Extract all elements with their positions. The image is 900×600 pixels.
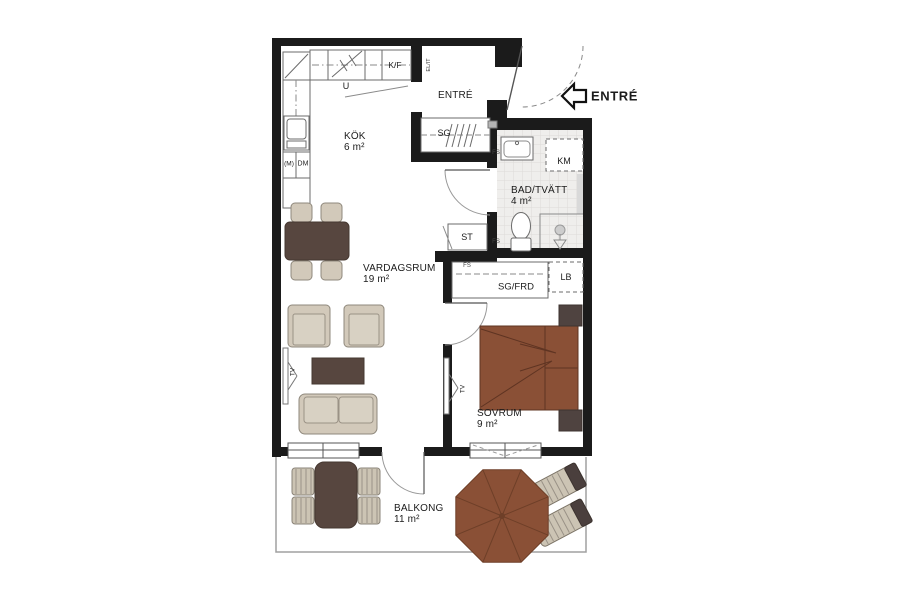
- fixture-label-dishwasher: DM: [298, 161, 309, 168]
- fixture-label-pipe-cabinet-3: FS: [463, 263, 471, 269]
- room-name: BAD/TVÄTT: [511, 185, 567, 196]
- room-label-balkong: BALKONG 11 m²: [394, 503, 443, 525]
- room-name: KÖK: [344, 131, 366, 142]
- room-area: 4 m²: [511, 196, 567, 207]
- fixture-label-linen-cabinet: LB: [560, 272, 571, 282]
- parasol-icon: [456, 470, 548, 562]
- fixture-label-wardrobe-sg: SG: [437, 128, 450, 138]
- entrance-arrow-icon: [562, 84, 586, 108]
- room-label-kok: KÖK 6 m²: [344, 131, 366, 153]
- fixture-label-tv-bedroom: TV: [460, 385, 467, 393]
- room-label-sovrum: SOVRUM 9 m²: [477, 408, 522, 430]
- room-label-bad-tvatt: BAD/TVÄTT 4 m²: [511, 185, 567, 207]
- room-area: 19 m²: [363, 274, 435, 285]
- room-label-entre-hall: ENTRÉ: [438, 90, 473, 101]
- room-area: 11 m²: [394, 514, 443, 525]
- room-area: 6 m²: [344, 142, 366, 153]
- floorplan-page: KÖK 6 m² VARDAGSRUM 19 m² BAD/TVÄTT 4 m²…: [0, 0, 900, 600]
- room-name: VARDAGSRUM: [363, 263, 435, 274]
- room-name: BALKONG: [394, 503, 443, 514]
- room-name: SOVRUM: [477, 408, 522, 419]
- entrance-label: ENTRÉ: [591, 89, 638, 104]
- fixture-label-microwave: (M): [284, 161, 294, 168]
- fixture-label-cleaning-closet: ST: [461, 232, 473, 242]
- fixture-label-fridge-freezer: K/F: [388, 60, 401, 70]
- room-name: ENTRÉ: [438, 90, 473, 101]
- fixture-label-pipe-cabinet-1: FS: [492, 150, 500, 156]
- fixture-label-electrical-cabinet: EL/IT: [426, 58, 432, 71]
- kitchen-cabinets: [283, 50, 411, 208]
- fixture-label-wardrobe-storage: SG/FRD: [498, 282, 534, 293]
- room-label-vardagsrum: VARDAGSRUM 19 m²: [363, 263, 435, 285]
- fixture-label-oven: U: [343, 81, 350, 91]
- fixture-label-washing-machine: KM: [557, 156, 571, 166]
- room-area: 9 m²: [477, 419, 522, 430]
- windows: [288, 443, 541, 458]
- fixture-label-pipe-cabinet-2: FS: [492, 239, 500, 245]
- living-room-furniture: [283, 203, 384, 434]
- fixture-label-tv-living: TV: [290, 368, 297, 376]
